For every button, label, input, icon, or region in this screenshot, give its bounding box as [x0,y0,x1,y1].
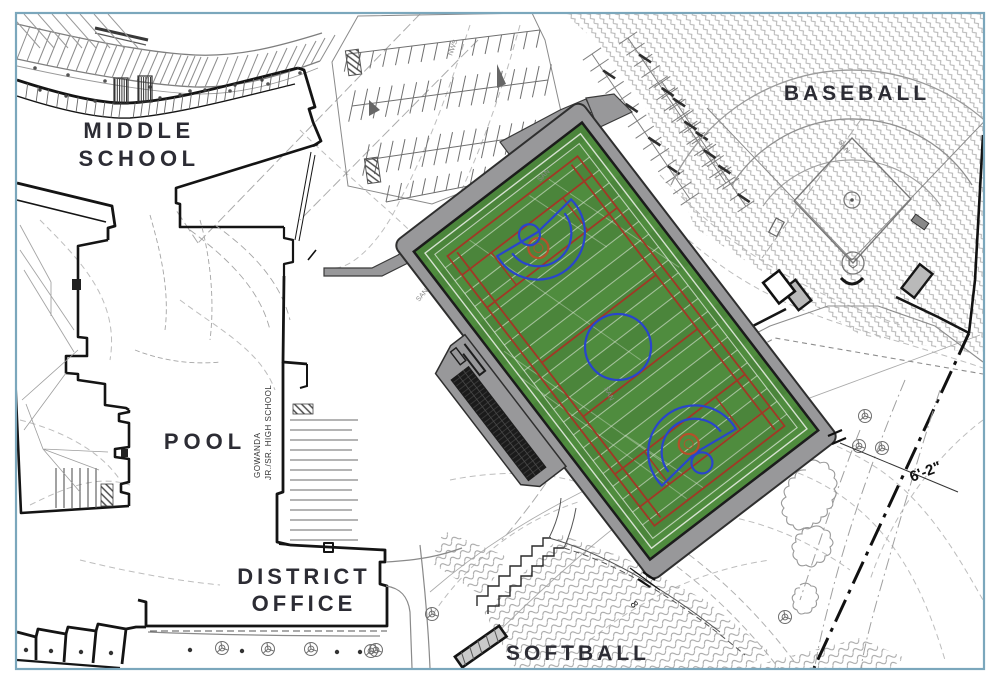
svg-text:SCHOOL: SCHOOL [78,146,199,171]
svg-text:BASEBALL: BASEBALL [784,82,930,105]
svg-text:OFFICE: OFFICE [252,591,357,616]
svg-text:SOFTBALL: SOFTBALL [506,642,650,665]
svg-text:MIDDLE: MIDDLE [83,118,194,143]
svg-text:GOWANDA: GOWANDA [253,432,262,478]
svg-text:JR./SR. HIGH SCHOOL: JR./SR. HIGH SCHOOL [264,385,273,480]
svg-text:DISTRICT: DISTRICT [237,564,370,589]
svg-text:POOL: POOL [164,429,246,454]
